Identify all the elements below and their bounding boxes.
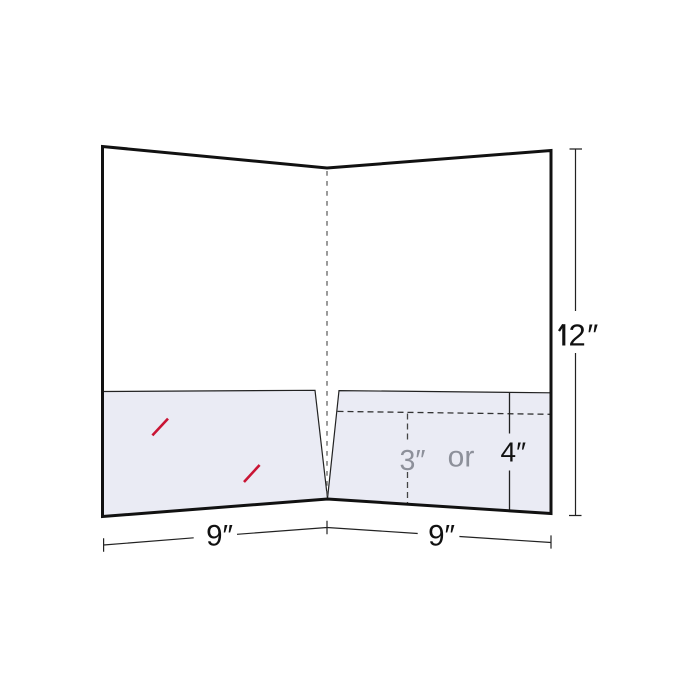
svg-text:3″: 3″ <box>400 445 426 477</box>
svg-text:2″: 2″ <box>569 318 600 353</box>
svg-text:9″: 9″ <box>428 520 455 553</box>
svg-text:or: or <box>448 441 475 474</box>
svg-text:4″: 4″ <box>501 437 527 468</box>
svg-text:9″: 9″ <box>206 520 233 553</box>
